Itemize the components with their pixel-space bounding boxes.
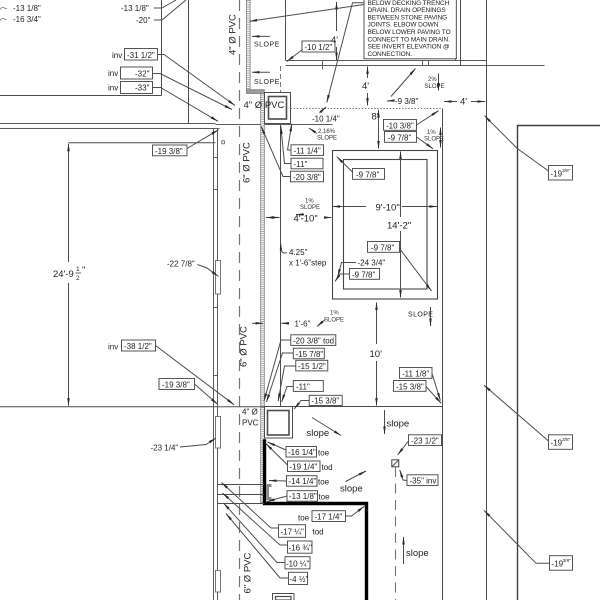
- svg-text:-16 3/4": -16 3/4": [13, 15, 41, 24]
- svg-text:-9 3/8": -9 3/8": [395, 97, 418, 106]
- svg-text:-31 1/2": -31 1/2": [127, 51, 155, 60]
- svg-text:3/8": 3/8": [562, 168, 571, 174]
- svg-text:9'-10": 9'-10": [376, 203, 400, 214]
- svg-text:toe: toe: [319, 493, 331, 502]
- svg-text:2.16%: 2.16%: [318, 129, 336, 135]
- svg-text:slope: slope: [307, 428, 330, 439]
- svg-text:6" Ø PVC: 6" Ø PVC: [242, 142, 253, 183]
- svg-text:4': 4': [460, 97, 467, 108]
- svg-text:-15 1/2": -15 1/2": [298, 362, 326, 371]
- svg-text:-19 3/8": -19 3/8": [162, 381, 190, 390]
- svg-text:8': 8': [372, 112, 379, 123]
- svg-text:slope: slope: [387, 419, 410, 430]
- svg-text:-11": -11": [294, 160, 308, 169]
- svg-text:6" Ø PVC: 6" Ø PVC: [239, 326, 250, 367]
- svg-text:-10 1/4": -10 1/4": [312, 115, 340, 124]
- svg-text:-13 1/8": -13 1/8": [13, 4, 41, 13]
- svg-text:SLOPE: SLOPE: [324, 318, 344, 324]
- svg-text:SLOPE: SLOPE: [317, 136, 337, 142]
- svg-text:inv: inv: [112, 51, 122, 60]
- svg-text:-20": -20": [136, 16, 151, 25]
- svg-text:-19: -19: [551, 170, 563, 179]
- svg-text:-10 1/2": -10 1/2": [305, 43, 333, 52]
- svg-text:4" Ø PVC: 4" Ø PVC: [244, 100, 285, 111]
- svg-text:-11 1/8": -11 1/8": [402, 370, 429, 379]
- svg-text:3/8": 3/8": [562, 437, 571, 443]
- svg-text:": ": [82, 265, 85, 276]
- svg-text:SLOPE: SLOPE: [424, 137, 444, 143]
- svg-text:SLOPE: SLOPE: [300, 205, 320, 211]
- svg-text:-20 3/8" tod: -20 3/8" tod: [293, 337, 334, 346]
- svg-text:tod: tod: [322, 463, 333, 472]
- svg-text:-35" inv: -35" inv: [410, 477, 437, 486]
- svg-text:-13 1/8": -13 1/8": [121, 4, 149, 13]
- svg-text:-9 7/8": -9 7/8": [352, 271, 375, 280]
- svg-text:4': 4': [331, 35, 338, 46]
- svg-text:6" Ø PVC: 6" Ø PVC: [243, 553, 254, 594]
- svg-text:-11 1/4": -11 1/4": [294, 147, 321, 156]
- svg-text:-16 ¾": -16 ¾": [289, 544, 312, 553]
- svg-text:-11": -11": [296, 383, 310, 392]
- svg-text:-15 3/8": -15 3/8": [312, 397, 340, 406]
- svg-text:-17 ¼": -17 ¼": [281, 528, 304, 537]
- svg-text:BELOW DECKING TRENCH DRAIN. DR: BELOW DECKING TRENCH DRAIN. DRAIN OPENIN…: [368, 0, 453, 58]
- svg-text:-9 7/8": -9 7/8": [356, 171, 379, 180]
- svg-text:toe: toe: [298, 514, 310, 523]
- svg-text:-15 3/8": -15 3/8": [396, 383, 424, 392]
- svg-text:-10 ¼": -10 ¼": [286, 560, 309, 569]
- svg-text:-17 1/4": -17 1/4": [315, 513, 343, 522]
- svg-text:-38 1/2": -38 1/2": [124, 342, 152, 351]
- svg-text:-33": -33": [135, 84, 150, 93]
- svg-text:-10 3/8": -10 3/8": [386, 122, 414, 131]
- svg-text:SLOPE: SLOPE: [425, 84, 445, 90]
- svg-text:inv: inv: [108, 343, 118, 352]
- svg-text:24'-9: 24'-9: [53, 269, 74, 280]
- svg-text:1: 1: [76, 266, 80, 273]
- svg-text:-23 1/4": -23 1/4": [151, 444, 179, 453]
- svg-text:3/8": 3/8": [563, 558, 572, 564]
- svg-text:10': 10': [370, 349, 383, 360]
- svg-text:14'-2": 14'-2": [387, 221, 411, 232]
- svg-text:-19 1/4": -19 1/4": [290, 463, 318, 472]
- svg-text:-19 3/8": -19 3/8": [155, 147, 183, 156]
- svg-text:inv: inv: [108, 69, 118, 78]
- svg-text:SLOPE: SLOPE: [254, 42, 280, 49]
- svg-text:slope: slope: [406, 548, 429, 559]
- svg-text:slope: slope: [340, 484, 363, 495]
- svg-text:tod: tod: [313, 528, 324, 537]
- svg-text:-22 7/8": -22 7/8": [167, 260, 195, 269]
- svg-text:4.25": 4.25": [289, 248, 308, 257]
- svg-text:-24 3/4": -24 3/4": [358, 259, 386, 268]
- svg-text:4'-10": 4'-10": [294, 214, 318, 225]
- svg-text:-4 ½": -4 ½": [290, 575, 309, 584]
- svg-text:SLOPE: SLOPE: [254, 79, 280, 86]
- svg-text:1%: 1%: [305, 199, 314, 205]
- svg-text:1%: 1%: [427, 130, 436, 136]
- svg-text:-13 1/8": -13 1/8": [289, 492, 317, 501]
- svg-text:-23 1/2": -23 1/2": [411, 437, 439, 446]
- svg-text:4" Ø: 4" Ø: [242, 408, 258, 417]
- svg-text:1%: 1%: [330, 311, 339, 317]
- svg-text:-19: -19: [551, 439, 563, 448]
- svg-text:-16 1/4": -16 1/4": [288, 448, 316, 457]
- svg-text:toe: toe: [318, 449, 330, 458]
- svg-text:2%: 2%: [428, 77, 437, 83]
- svg-text:-15 7/8": -15 7/8": [296, 350, 324, 359]
- svg-text:2: 2: [76, 275, 80, 282]
- svg-text:toe: toe: [318, 478, 330, 487]
- svg-text:PVC: PVC: [242, 419, 259, 428]
- svg-text:4" Ø PVC: 4" Ø PVC: [228, 14, 239, 55]
- svg-text:-14 1/4": -14 1/4": [289, 477, 317, 486]
- svg-text:4': 4': [362, 81, 369, 92]
- svg-text:1'-6": 1'-6": [295, 320, 311, 329]
- svg-text:SLOPE: SLOPE: [408, 312, 433, 319]
- svg-text:x 1'-6"step: x 1'-6"step: [289, 259, 327, 268]
- svg-text:inv: inv: [108, 84, 118, 93]
- svg-text:-9 7/8": -9 7/8": [371, 244, 394, 253]
- svg-text:-9 7/8": -9 7/8": [388, 134, 411, 143]
- svg-text:-20 3/8": -20 3/8": [293, 173, 321, 182]
- svg-text:-32": -32": [135, 70, 150, 79]
